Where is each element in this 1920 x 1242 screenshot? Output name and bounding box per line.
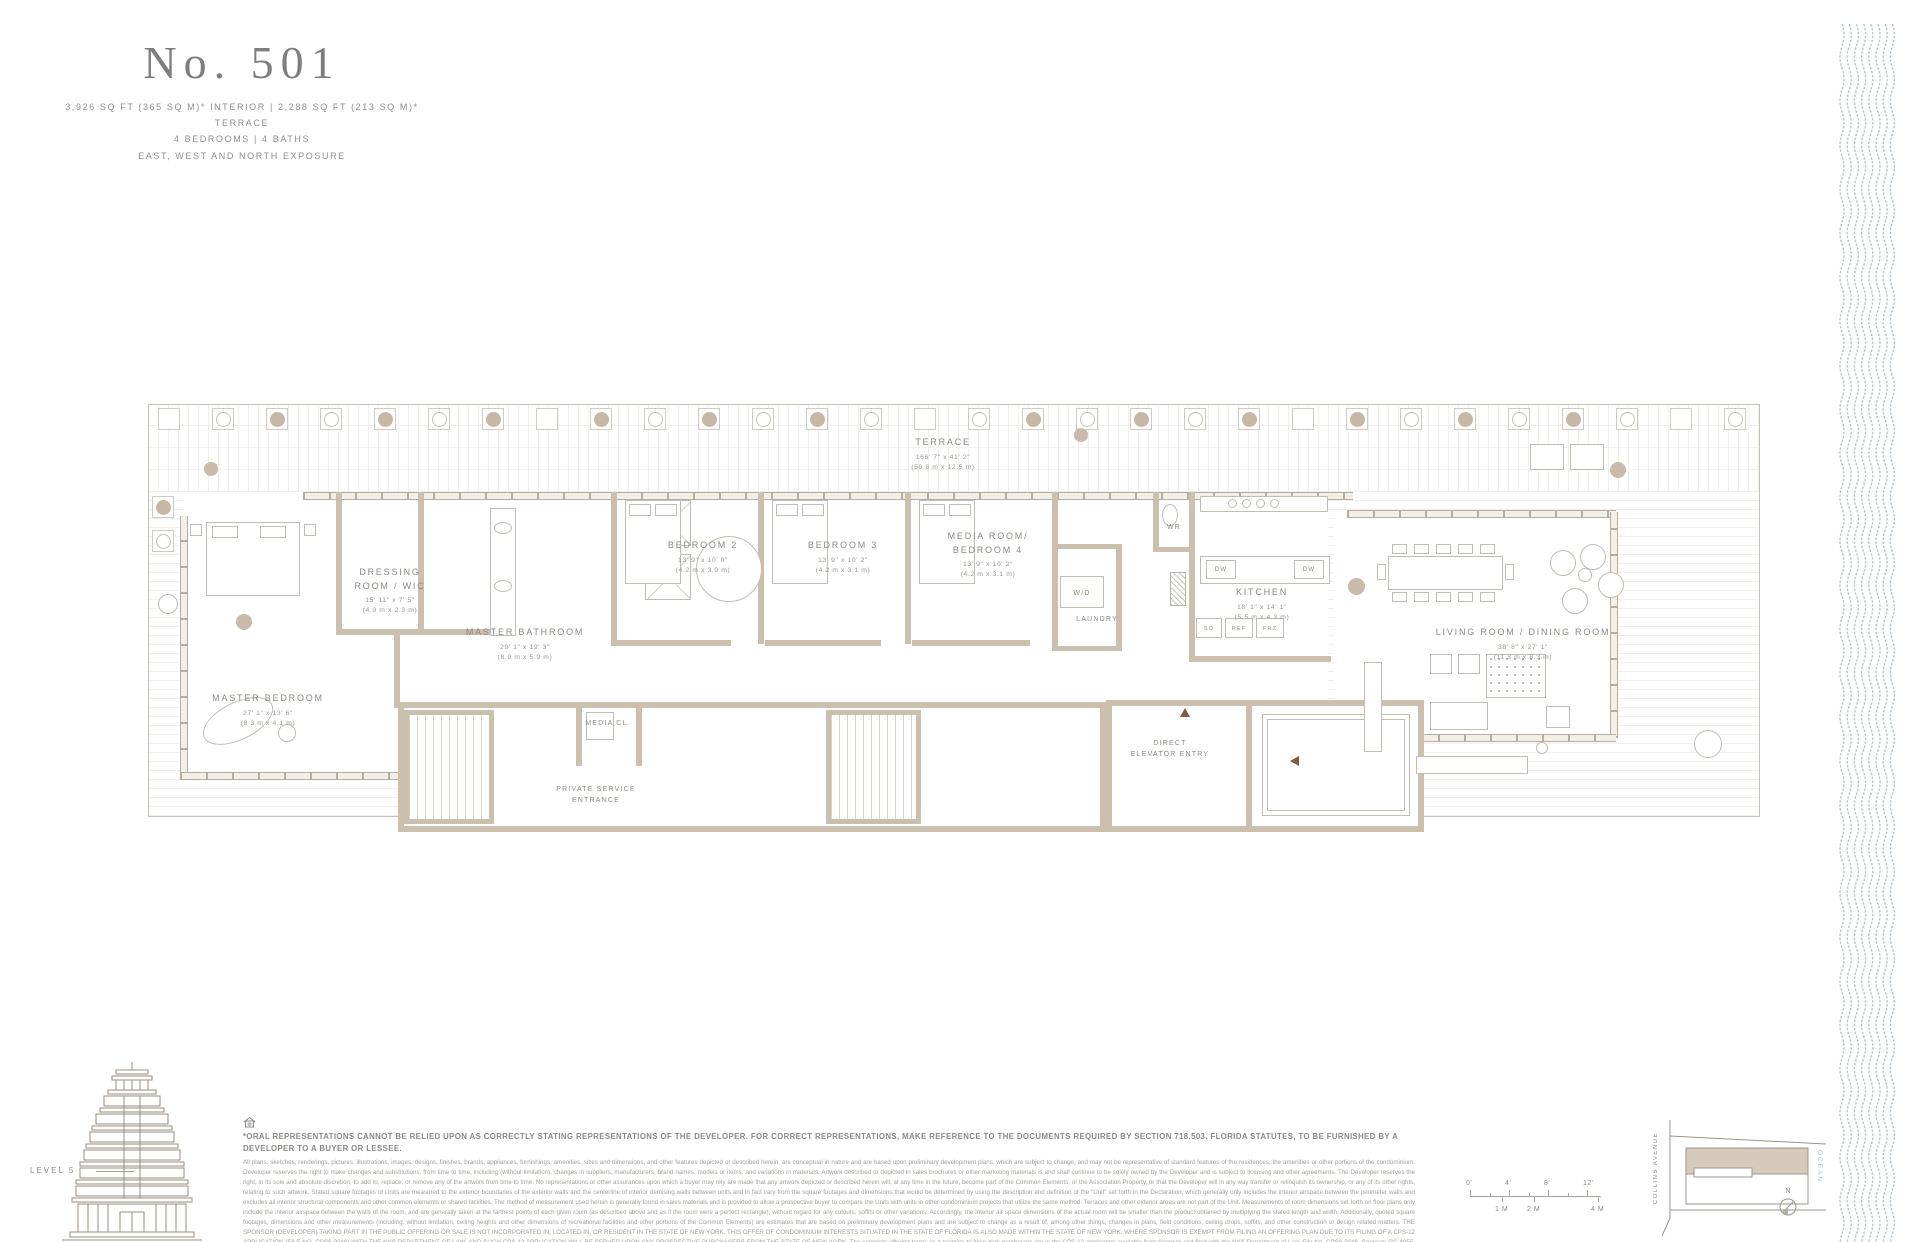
building-elevation <box>62 1058 202 1242</box>
wave-line <box>1869 24 1873 1242</box>
pillow-icon <box>212 526 238 538</box>
scale-tick-label: 1 M <box>1495 1206 1508 1213</box>
elevator-cab <box>1262 714 1410 816</box>
window-wall-master-south <box>180 772 398 780</box>
stairwell <box>404 710 494 824</box>
sofa-icon <box>1416 756 1528 774</box>
planter <box>320 408 342 430</box>
column-icon <box>1610 462 1626 478</box>
scale-minor-tick <box>1490 1193 1491 1197</box>
chair-icon <box>1505 564 1514 580</box>
ocean-label: OCEAN <box>1816 1150 1823 1183</box>
sofa-icon <box>1364 662 1382 752</box>
scale-bar: 0' 4' 8' 12' 1 M 2 M 4 M <box>1470 1180 1620 1220</box>
nightstand-icon <box>304 524 316 536</box>
room-label-master-bedroom: MASTER BEDROOM 27' 1" x 13' 6"(8.3 m x 4… <box>183 692 353 729</box>
wall <box>394 632 400 708</box>
planter <box>698 408 720 430</box>
wave-line <box>1862 24 1866 1242</box>
planter <box>806 408 828 430</box>
room-label-master-bath: MASTER BATHROOM 29' 1" x 19' 3"(8.9 m x … <box>440 626 610 663</box>
planter <box>590 408 612 430</box>
scale-tick-label: 8' <box>1544 1180 1550 1187</box>
window-wall-north <box>303 492 1353 500</box>
key-plan <box>1648 1118 1833 1238</box>
scale-tick-label: 4' <box>1505 1180 1511 1187</box>
chair-icon <box>1480 544 1495 554</box>
room-label-terrace: TERRACE 166' 7" x 41' 2"(50.8 m x 12.5 m… <box>858 436 1028 473</box>
column-icon <box>1348 578 1365 595</box>
terrace-edge-right <box>1759 404 1760 816</box>
chair-icon <box>1377 564 1386 580</box>
entry-arrow-icon <box>1180 708 1190 717</box>
wall <box>1052 646 1122 651</box>
coffee-table-icon <box>1430 702 1488 730</box>
patio-chair-icon <box>1562 588 1588 614</box>
scale-tick <box>1587 1190 1588 1197</box>
label-private-service: PRIVATE SERVICE ENTRANCE <box>536 784 656 806</box>
terrace-edge-top <box>148 404 1760 405</box>
planter <box>752 408 774 430</box>
planter <box>266 408 288 430</box>
label-laundry: LAUNDRY <box>1054 614 1140 625</box>
patio-chair-icon <box>1550 550 1576 576</box>
scale-tick <box>1598 1197 1599 1202</box>
spec-area: 3,926 SQ FT (365 SQ M)* INTERIOR | 2,288… <box>62 99 422 131</box>
level-label: LEVEL 5 <box>30 1166 75 1175</box>
terrace-edge-bottom-left <box>148 816 400 817</box>
lounger-icon <box>1570 444 1604 470</box>
sink-icon <box>494 522 512 534</box>
wall <box>1246 700 1252 832</box>
planter <box>152 496 174 518</box>
column-icon <box>204 462 218 476</box>
stairwell <box>826 710 921 824</box>
chair-icon <box>1458 544 1473 554</box>
planter <box>914 408 936 430</box>
planter <box>1616 408 1638 430</box>
planter <box>860 408 882 430</box>
scale-tick-label: 12' <box>1583 1180 1594 1187</box>
wall <box>765 640 881 646</box>
unit-number: No. 501 <box>62 36 422 89</box>
planter <box>1292 408 1314 430</box>
dishwasher: DW <box>1206 560 1236 579</box>
chair-icon <box>1392 544 1407 554</box>
planter <box>428 408 450 430</box>
wall <box>398 826 1106 832</box>
scale-tick-label: 4 M <box>1591 1206 1604 1213</box>
wave-line <box>1847 24 1851 1242</box>
planter <box>536 408 558 430</box>
scale-tick <box>1548 1190 1549 1197</box>
room-label-living-dining: LIVING ROOM / DINING ROOM 38' 8" x 27' 1… <box>1416 626 1630 663</box>
side-table-icon <box>1536 742 1548 754</box>
window-wall-living-north <box>1347 510 1616 518</box>
wall <box>611 640 731 646</box>
wall <box>398 702 1106 708</box>
burner-icon <box>1256 499 1265 508</box>
label-media-cl: MEDIA CL. <box>582 718 634 729</box>
wall <box>1116 544 1122 650</box>
north-compass-icon <box>1779 1198 1797 1216</box>
wall <box>1189 492 1195 662</box>
planter <box>374 408 396 430</box>
wave-line <box>1840 24 1844 1242</box>
level-pointer-line <box>96 1171 134 1172</box>
scale-tick-label: 2 M <box>1527 1206 1540 1213</box>
chair-icon <box>1458 592 1473 602</box>
terrace-edge-left <box>148 404 149 816</box>
column-icon <box>1074 428 1088 442</box>
planter <box>1454 408 1476 430</box>
patio-chair-icon <box>1598 572 1624 598</box>
scale-tick-label: 0' <box>1466 1180 1472 1187</box>
dishwasher: DW <box>1294 560 1324 579</box>
chair-icon <box>1436 544 1451 554</box>
room-label-kitchen: KITCHEN 18' 1" x 14' 1"(5.5 m x 4.3 m) <box>1177 586 1347 623</box>
planter <box>212 408 234 430</box>
room-label-dressing: DRESSING ROOM / WIC 15' 11" x 7' 5"(4.9 … <box>330 566 450 616</box>
disclaimer-bold: *ORAL REPRESENTATIONS CANNOT BE RELIED U… <box>243 1131 1415 1154</box>
planter <box>1670 408 1692 430</box>
planter <box>1508 408 1530 430</box>
armchair-icon <box>1546 706 1570 728</box>
planter <box>1238 408 1260 430</box>
floorplan-sheet: No. 501 3,926 SQ FT (365 SQ M)* INTERIOR… <box>0 0 1920 1242</box>
pillow-icon <box>949 504 971 516</box>
wall <box>1193 656 1331 662</box>
pillow-icon <box>629 504 651 516</box>
scale-tick <box>1502 1197 1503 1202</box>
label-wr: WR <box>1156 522 1192 533</box>
label-wd: W/D <box>1062 588 1102 599</box>
wave-line <box>1876 24 1880 1242</box>
planter <box>152 530 174 552</box>
room-label-media-bedroom4: MEDIA ROOM/ BEDROOM 4 13' 9" x 10' 2"(4.… <box>903 530 1073 580</box>
chair-icon <box>1480 592 1495 602</box>
lounger-icon <box>1530 444 1564 470</box>
wave-line <box>1883 24 1887 1242</box>
terrace-edge-bottom-right <box>1424 816 1760 817</box>
planter <box>644 408 666 430</box>
plant-icon <box>158 594 178 614</box>
window-wall-west <box>180 516 188 776</box>
scale-tick <box>1509 1190 1510 1197</box>
chair-icon <box>1414 544 1429 554</box>
label-direct-elevator: DIRECT ELEVATOR ENTRY <box>1130 738 1210 760</box>
planter <box>1562 408 1584 430</box>
pillow-icon <box>655 504 677 516</box>
spec-rooms: 4 BEDROOMS | 4 BATHS <box>62 131 422 147</box>
north-label: N <box>1778 1188 1798 1195</box>
pillow-icon <box>802 504 824 516</box>
wall <box>576 704 582 766</box>
scale-minor-tick <box>1529 1193 1530 1197</box>
window-wall-living-east <box>1610 512 1618 738</box>
pillow-icon <box>923 504 945 516</box>
wave-line <box>1854 24 1858 1242</box>
planter <box>968 408 990 430</box>
equal-housing-icon <box>243 1116 256 1128</box>
disclaimer-fine-print: All plans, sketches, renderings, picture… <box>243 1158 1415 1242</box>
planter <box>158 408 180 430</box>
column-icon <box>236 614 252 630</box>
scale-tick <box>1470 1190 1471 1197</box>
wall <box>636 704 642 766</box>
elevator-cab-inner <box>1267 719 1405 811</box>
disclaimer: *ORAL REPRESENTATIONS CANNOT BE RELIED U… <box>243 1131 1415 1242</box>
chair-icon <box>1392 592 1407 602</box>
planter <box>1022 408 1044 430</box>
pillow-icon <box>260 526 286 538</box>
planter <box>1400 408 1422 430</box>
burner-icon <box>1270 499 1279 508</box>
patio-chair-icon <box>1580 544 1606 570</box>
patio-table-icon <box>1578 568 1592 582</box>
planter <box>482 408 504 430</box>
chair-icon <box>1436 592 1451 602</box>
wall <box>912 640 1030 646</box>
elevator-arrow-icon <box>1290 756 1299 766</box>
dining-table-icon <box>1388 556 1503 590</box>
patio-chair-icon <box>1694 730 1722 758</box>
planter <box>1724 408 1746 430</box>
floor-plan: DW DW SO REF FRZ TERRAC <box>148 404 1760 879</box>
sink-icon <box>494 580 512 592</box>
scale-minor-tick <box>1568 1193 1569 1197</box>
planter <box>1184 408 1206 430</box>
burner-icon <box>1228 499 1237 508</box>
pillow-icon <box>776 504 798 516</box>
spec-exposure: EAST, WEST AND NORTH EXPOSURE <box>62 148 422 164</box>
chair-icon <box>1414 592 1429 602</box>
planter <box>1076 408 1098 430</box>
nightstand-icon <box>190 524 202 536</box>
burner-icon <box>1242 499 1251 508</box>
planter <box>1130 408 1152 430</box>
scale-tick <box>1534 1197 1535 1202</box>
planter <box>1346 408 1368 430</box>
wave-line <box>1890 24 1894 1242</box>
ocean-wave-pattern <box>1838 24 1896 1242</box>
header: No. 501 3,926 SQ FT (365 SQ M)* INTERIOR… <box>62 36 422 164</box>
wall <box>611 492 617 644</box>
